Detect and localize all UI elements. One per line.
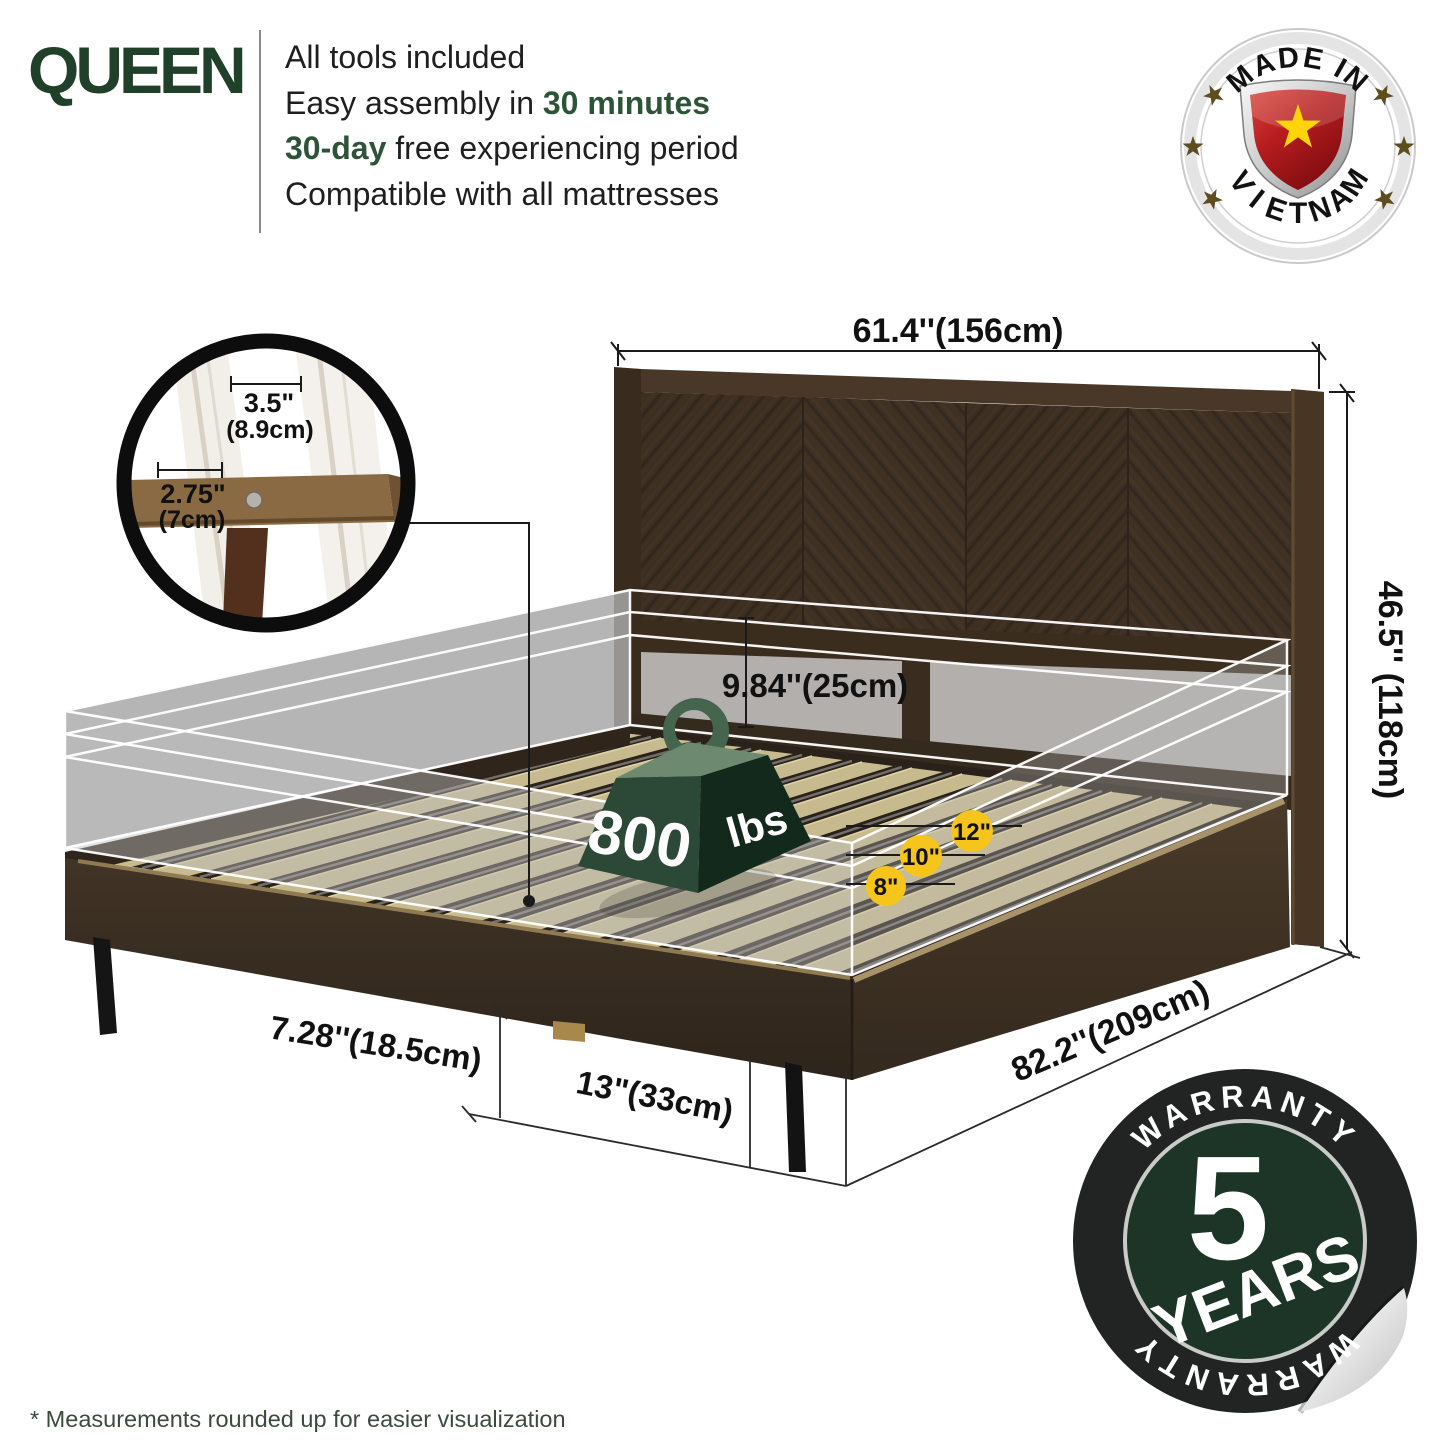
- svg-text:Compatible with all mattresses: Compatible with all mattresses: [285, 176, 719, 212]
- svg-text:Easy assembly in 30 minutes: Easy assembly in 30 minutes: [285, 85, 710, 121]
- svg-text:QUEEN: QUEEN: [28, 33, 243, 107]
- svg-text:(7cm): (7cm): [159, 506, 226, 534]
- svg-text:9.84''(25cm): 9.84''(25cm): [722, 667, 908, 704]
- svg-text:T: T: [1289, 197, 1307, 230]
- svg-text:(8.9cm): (8.9cm): [226, 416, 314, 444]
- svg-text:61.4''(156cm): 61.4''(156cm): [853, 312, 1064, 350]
- svg-text:12": 12": [953, 819, 991, 846]
- svg-text:All tools included: All tools included: [285, 39, 525, 75]
- svg-text:* Measurements rounded up for: * Measurements rounded up for easier vis…: [30, 1406, 566, 1432]
- svg-text:46.5'' (118cm): 46.5'' (118cm): [1371, 581, 1409, 799]
- svg-text:30-day free experiencing perio: 30-day free experiencing period: [285, 130, 739, 166]
- svg-text:2.75": 2.75": [160, 479, 225, 509]
- svg-text:10": 10": [902, 844, 940, 871]
- svg-text:8": 8": [874, 874, 899, 901]
- svg-text:3.5": 3.5": [244, 388, 294, 418]
